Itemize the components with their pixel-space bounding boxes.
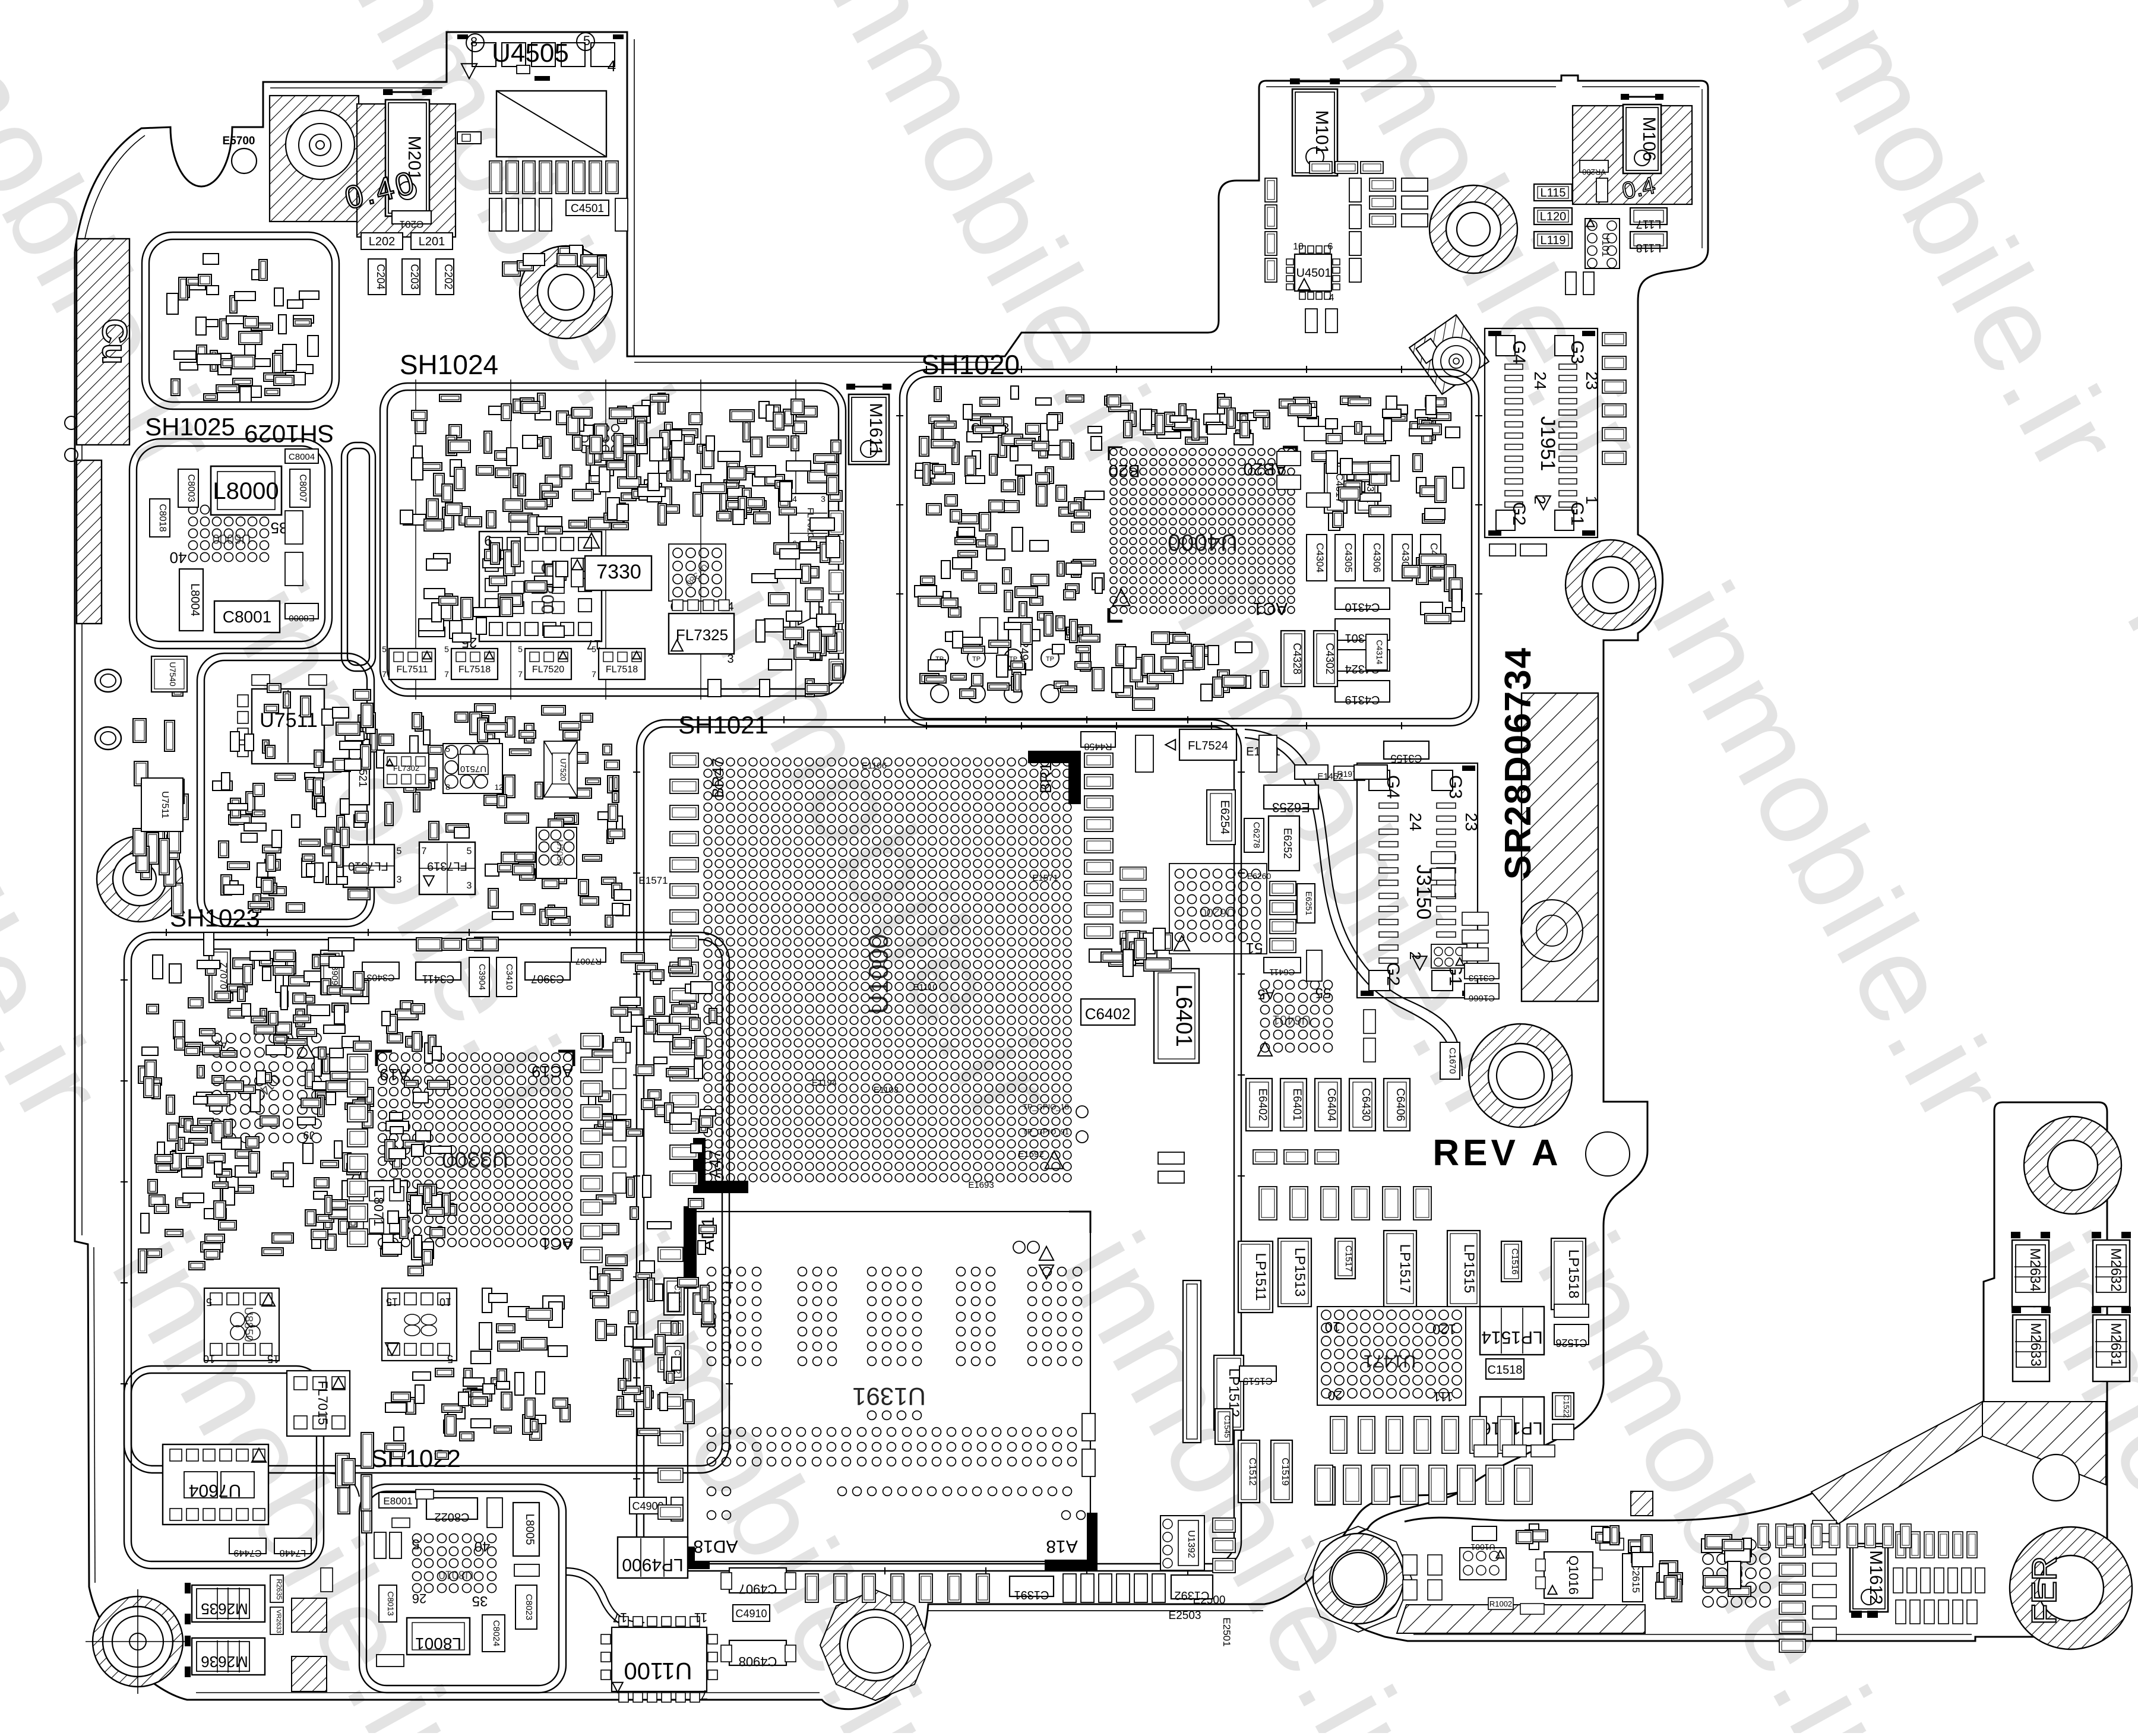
svg-text:E8000: E8000 bbox=[289, 613, 314, 623]
svg-text:C6278: C6278 bbox=[1251, 822, 1261, 848]
svg-text:A47: A47 bbox=[706, 1150, 724, 1178]
svg-text:L202: L202 bbox=[369, 235, 396, 248]
svg-text:A5: A5 bbox=[1257, 986, 1274, 1002]
svg-text:C8018: C8018 bbox=[157, 504, 167, 532]
svg-text:U8010: U8010 bbox=[439, 1568, 474, 1581]
svg-text:C4310: C4310 bbox=[1345, 600, 1380, 614]
svg-text:C6404: C6404 bbox=[1325, 1088, 1337, 1121]
svg-text:7: 7 bbox=[701, 1687, 708, 1702]
svg-text:C1670: C1670 bbox=[1447, 1048, 1457, 1074]
svg-text:24: 24 bbox=[1406, 812, 1425, 831]
svg-text:L115: L115 bbox=[1540, 186, 1565, 200]
svg-text:C201: C201 bbox=[400, 219, 424, 230]
svg-text:BR47: BR47 bbox=[709, 758, 727, 798]
svg-text:E1452: E1452 bbox=[1317, 771, 1343, 782]
svg-text:6: 6 bbox=[1328, 242, 1333, 252]
svg-text:5: 5 bbox=[467, 846, 472, 856]
svg-text:M2636: M2636 bbox=[201, 1653, 248, 1671]
svg-text:C202: C202 bbox=[442, 264, 454, 289]
svg-text:4: 4 bbox=[1329, 293, 1334, 303]
svg-text:C1666: C1666 bbox=[1469, 993, 1495, 1003]
svg-text:7: 7 bbox=[444, 669, 449, 679]
svg-text:C4302: C4302 bbox=[1324, 643, 1336, 674]
svg-text:M1612: M1612 bbox=[1866, 1550, 1886, 1605]
svg-text:5: 5 bbox=[583, 33, 590, 48]
svg-text:7: 7 bbox=[422, 846, 427, 856]
svg-text:C8007: C8007 bbox=[298, 474, 308, 502]
svg-text:C8001: C8001 bbox=[223, 608, 272, 626]
svg-text:C1522: C1522 bbox=[1562, 1395, 1571, 1418]
svg-text:23: 23 bbox=[1583, 371, 1601, 390]
svg-text:C1545: C1545 bbox=[1223, 1415, 1232, 1438]
svg-text:C1526: C1526 bbox=[1555, 1337, 1587, 1349]
svg-text:10: 10 bbox=[1325, 1318, 1341, 1335]
svg-text:7: 7 bbox=[592, 669, 596, 679]
svg-text:C4501: C4501 bbox=[571, 203, 604, 215]
svg-text:C3155: C3155 bbox=[1390, 752, 1422, 764]
svg-text:8: 8 bbox=[445, 782, 450, 792]
svg-text:U1001: U1001 bbox=[1470, 1542, 1495, 1552]
svg-text:15: 15 bbox=[386, 1296, 398, 1308]
svg-text:C1392: C1392 bbox=[1175, 1589, 1210, 1602]
svg-text:C4306: C4306 bbox=[1371, 543, 1383, 573]
svg-text:U7030: U7030 bbox=[555, 840, 565, 866]
svg-text:5: 5 bbox=[447, 1353, 453, 1365]
svg-text:L118: L118 bbox=[1636, 241, 1661, 254]
svg-text:TP: TP bbox=[1046, 656, 1054, 663]
svg-text:5: 5 bbox=[518, 644, 523, 654]
svg-text:3: 3 bbox=[727, 653, 733, 666]
svg-text:E6253: E6253 bbox=[1272, 800, 1310, 815]
svg-text:FL7511: FL7511 bbox=[396, 665, 428, 675]
svg-text:U101: U101 bbox=[1600, 233, 1611, 257]
svg-text:55: 55 bbox=[1315, 985, 1331, 1001]
svg-text:4: 4 bbox=[792, 494, 797, 504]
svg-text:E1110: E1110 bbox=[913, 982, 937, 992]
svg-text:C4907: C4907 bbox=[739, 1582, 777, 1596]
svg-text:LP1517: LP1517 bbox=[1397, 1244, 1413, 1294]
svg-text:U4501: U4501 bbox=[1296, 267, 1331, 280]
svg-text:7: 7 bbox=[382, 669, 387, 679]
svg-text:SH1024: SH1024 bbox=[400, 349, 498, 380]
svg-text:E1692: E1692 bbox=[1018, 1149, 1043, 1159]
svg-text:M2635: M2635 bbox=[201, 1600, 248, 1618]
svg-text:C4319: C4319 bbox=[1345, 693, 1380, 706]
svg-text:40: 40 bbox=[475, 1538, 491, 1554]
svg-text:C4314: C4314 bbox=[1375, 640, 1384, 664]
svg-text:L119: L119 bbox=[1540, 234, 1565, 247]
svg-text:5: 5 bbox=[206, 1296, 212, 1308]
svg-text:E2501: E2501 bbox=[1221, 1617, 1232, 1646]
svg-text:E1103: E1103 bbox=[874, 1085, 899, 1095]
svg-text:E6401: E6401 bbox=[1291, 1089, 1303, 1121]
svg-text:40: 40 bbox=[170, 549, 187, 567]
svg-text:U6401: U6401 bbox=[1273, 1013, 1311, 1027]
svg-text:C4305: C4305 bbox=[1343, 543, 1354, 573]
svg-text:M2631: M2631 bbox=[2108, 1323, 2124, 1366]
svg-text:C1515: C1515 bbox=[1243, 1375, 1273, 1387]
svg-text:E6252: E6252 bbox=[1282, 828, 1293, 859]
svg-text:L120: L120 bbox=[1540, 210, 1567, 223]
svg-text:AD18: AD18 bbox=[693, 1536, 738, 1556]
svg-text:TP_GPIO_18: TP_GPIO_18 bbox=[1023, 1102, 1069, 1111]
svg-text:17: 17 bbox=[613, 1610, 627, 1625]
svg-text:SH1021: SH1021 bbox=[678, 711, 768, 739]
svg-text:7: 7 bbox=[518, 669, 523, 679]
svg-text:FER: FER bbox=[2025, 1556, 2064, 1625]
svg-text:FL7520: FL7520 bbox=[532, 665, 564, 675]
svg-text:C6402: C6402 bbox=[1085, 1005, 1131, 1023]
svg-text:E1571: E1571 bbox=[638, 875, 668, 886]
svg-text:U1392: U1392 bbox=[1186, 1530, 1196, 1558]
svg-text:C3153: C3153 bbox=[1469, 973, 1495, 983]
svg-text:10: 10 bbox=[1293, 242, 1304, 252]
svg-text:U4000: U4000 bbox=[1168, 529, 1238, 555]
svg-text:20: 20 bbox=[1328, 1388, 1342, 1403]
svg-text:LP1513: LP1513 bbox=[1292, 1248, 1308, 1297]
svg-text:E1194: E1194 bbox=[812, 1078, 837, 1088]
svg-text:E2503: E2503 bbox=[1169, 1609, 1201, 1622]
svg-text:15: 15 bbox=[267, 1353, 279, 1365]
svg-text:VR200: VR200 bbox=[1582, 167, 1606, 176]
svg-text:TP: TP bbox=[972, 656, 981, 663]
svg-text:E6254: E6254 bbox=[1218, 800, 1231, 834]
svg-text:L8004: L8004 bbox=[188, 583, 201, 616]
svg-text:U7511: U7511 bbox=[160, 791, 170, 818]
svg-text:E1693: E1693 bbox=[968, 1180, 994, 1190]
svg-text:C1518: C1518 bbox=[1488, 1364, 1523, 1377]
svg-text:FL7015: FL7015 bbox=[315, 1381, 330, 1425]
svg-text:Cu: Cu bbox=[95, 318, 134, 364]
svg-text:C6411: C6411 bbox=[1269, 967, 1295, 977]
svg-text:E5700: E5700 bbox=[223, 135, 255, 147]
svg-text:C1512: C1512 bbox=[1247, 1457, 1257, 1485]
svg-text:C4910: C4910 bbox=[735, 1608, 767, 1620]
svg-text:C6406: C6406 bbox=[1394, 1088, 1406, 1121]
svg-text:LP1514: LP1514 bbox=[1481, 1327, 1542, 1347]
svg-text:L8071: L8071 bbox=[371, 1190, 386, 1226]
svg-text:C3904: C3904 bbox=[477, 964, 487, 990]
svg-text:U1391: U1391 bbox=[852, 1383, 926, 1411]
svg-text:C4328: C4328 bbox=[1291, 643, 1303, 674]
svg-text:7330: 7330 bbox=[596, 561, 641, 583]
svg-text:E6251: E6251 bbox=[1304, 891, 1314, 916]
svg-text:G3: G3 bbox=[1567, 340, 1587, 364]
svg-text:E6402: E6402 bbox=[1256, 1089, 1269, 1121]
svg-text:SH1025: SH1025 bbox=[145, 413, 235, 441]
svg-text:R4458: R4458 bbox=[1084, 741, 1112, 751]
svg-text:M1611: M1611 bbox=[866, 403, 885, 456]
svg-text:SR28D06734: SR28D06734 bbox=[1498, 647, 1539, 880]
svg-text:SH1020: SH1020 bbox=[921, 349, 1020, 380]
svg-text:3: 3 bbox=[821, 494, 826, 504]
svg-text:L8000: L8000 bbox=[213, 478, 279, 504]
svg-text:C203: C203 bbox=[409, 264, 420, 289]
svg-text:FL7302: FL7302 bbox=[393, 764, 419, 773]
svg-text:C1519: C1519 bbox=[1280, 1457, 1290, 1485]
svg-text:AC1: AC1 bbox=[1253, 599, 1288, 618]
svg-text:10: 10 bbox=[439, 1296, 451, 1308]
svg-text:5: 5 bbox=[592, 644, 596, 654]
svg-text:5: 5 bbox=[412, 1536, 419, 1552]
svg-text:C3907: C3907 bbox=[531, 972, 564, 985]
svg-text:LP1515: LP1515 bbox=[1461, 1244, 1477, 1294]
svg-text:C8004: C8004 bbox=[289, 452, 315, 462]
svg-text:51: 51 bbox=[1246, 940, 1263, 957]
svg-text:C1516: C1516 bbox=[1510, 1248, 1520, 1275]
svg-text:U6000: U6000 bbox=[213, 532, 251, 546]
svg-text:G1: G1 bbox=[1567, 502, 1587, 526]
svg-text:R7007: R7007 bbox=[575, 956, 602, 966]
svg-text:U1100: U1100 bbox=[624, 1658, 692, 1684]
svg-text:E6260: E6260 bbox=[1247, 871, 1272, 881]
svg-text:C204: C204 bbox=[375, 264, 387, 289]
svg-text:U1000: U1000 bbox=[863, 934, 894, 1014]
svg-text:1: 1 bbox=[1583, 496, 1601, 504]
svg-text:TP_GPIO_91: TP_GPIO_91 bbox=[1023, 1127, 1069, 1136]
svg-text:C3411: C3411 bbox=[422, 972, 455, 985]
svg-text:U1471: U1471 bbox=[1364, 1351, 1416, 1371]
svg-text:C4908: C4908 bbox=[739, 1654, 777, 1669]
svg-text:U7540: U7540 bbox=[168, 662, 178, 686]
svg-text:C1391: C1391 bbox=[1014, 1588, 1049, 1601]
svg-text:4: 4 bbox=[608, 57, 616, 75]
svg-text:C4304: C4304 bbox=[1314, 543, 1326, 573]
svg-text:J1951: J1951 bbox=[1536, 416, 1559, 472]
svg-text:U7520: U7520 bbox=[559, 758, 568, 781]
svg-text:G4: G4 bbox=[1509, 340, 1529, 364]
svg-text:3: 3 bbox=[397, 875, 402, 885]
svg-text:11: 11 bbox=[694, 1610, 708, 1625]
svg-text:12: 12 bbox=[495, 783, 503, 792]
svg-text:C3410: C3410 bbox=[504, 964, 514, 990]
svg-text:B20: B20 bbox=[1108, 461, 1140, 480]
svg-text:5: 5 bbox=[445, 744, 450, 754]
svg-text:J9: J9 bbox=[303, 1129, 314, 1141]
svg-text:U7510: U7510 bbox=[460, 764, 486, 774]
svg-text:FL7518: FL7518 bbox=[606, 665, 638, 675]
svg-text:C2615: C2615 bbox=[1630, 1563, 1642, 1593]
svg-text:26: 26 bbox=[412, 1591, 426, 1606]
svg-text:8: 8 bbox=[470, 34, 477, 49]
svg-text:Q1016: Q1016 bbox=[1566, 1555, 1581, 1595]
svg-text:M2632: M2632 bbox=[2108, 1248, 2124, 1291]
svg-text:C1517: C1517 bbox=[1343, 1245, 1353, 1272]
svg-text:M2634: M2634 bbox=[2027, 1248, 2043, 1291]
svg-text:SH1029: SH1029 bbox=[244, 420, 334, 448]
svg-text:L6401: L6401 bbox=[1171, 984, 1196, 1047]
svg-text:35: 35 bbox=[472, 1593, 488, 1609]
svg-text:E1106: E1106 bbox=[862, 761, 887, 771]
svg-text:R1002: R1002 bbox=[1489, 1599, 1512, 1608]
svg-text:C6430: C6430 bbox=[1359, 1088, 1372, 1121]
svg-text:FL7518: FL7518 bbox=[458, 665, 491, 675]
svg-text:5: 5 bbox=[382, 644, 387, 654]
svg-text:5: 5 bbox=[444, 644, 449, 654]
svg-text:U4505: U4505 bbox=[492, 39, 569, 68]
svg-text:LP4900: LP4900 bbox=[622, 1555, 683, 1574]
svg-text:24: 24 bbox=[1531, 371, 1549, 390]
svg-text:111: 111 bbox=[1433, 1389, 1453, 1404]
svg-text:LP1518: LP1518 bbox=[1565, 1250, 1582, 1299]
svg-text:FL7524: FL7524 bbox=[1188, 739, 1228, 752]
svg-text:FL7319: FL7319 bbox=[427, 859, 467, 872]
svg-text:5: 5 bbox=[397, 846, 402, 856]
svg-text:M2633: M2633 bbox=[2028, 1323, 2044, 1366]
svg-text:A18: A18 bbox=[1046, 1536, 1077, 1556]
svg-text:AC19: AC19 bbox=[532, 1063, 573, 1081]
svg-text:U6200: U6200 bbox=[1200, 906, 1235, 919]
svg-text:BR1: BR1 bbox=[1037, 763, 1055, 794]
svg-text:10: 10 bbox=[203, 1353, 215, 1365]
svg-text:C3403: C3403 bbox=[366, 972, 394, 982]
svg-text:E1571: E1571 bbox=[1032, 873, 1058, 883]
svg-text:G2: G2 bbox=[1383, 962, 1403, 986]
svg-text:L201: L201 bbox=[419, 235, 445, 248]
svg-text:C8003: C8003 bbox=[186, 474, 196, 502]
svg-text:120: 120 bbox=[1432, 1321, 1456, 1337]
svg-text:U8850: U8850 bbox=[242, 1307, 255, 1342]
svg-text:AC1: AC1 bbox=[541, 1235, 573, 1253]
svg-text:2: 2 bbox=[1406, 951, 1424, 960]
svg-text:L117: L117 bbox=[1636, 217, 1661, 230]
svg-text:G3: G3 bbox=[1446, 775, 1465, 799]
svg-text:23: 23 bbox=[1462, 812, 1481, 831]
svg-text:3: 3 bbox=[467, 881, 472, 891]
svg-text:G2: G2 bbox=[1509, 502, 1529, 526]
svg-text:FL7325: FL7325 bbox=[676, 626, 728, 644]
svg-text:REV A: REV A bbox=[1432, 1133, 1561, 1174]
svg-text:LP1511: LP1511 bbox=[1253, 1253, 1269, 1301]
